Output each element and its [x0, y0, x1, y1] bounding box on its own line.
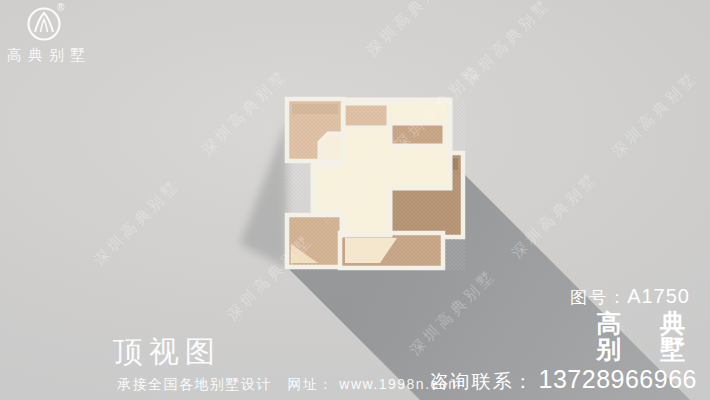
render-canvas: 深圳高典别墅 深圳高典别墅 深圳高典别墅 深圳高典别墅 深圳高典别墅 深圳高典别…: [0, 0, 710, 400]
footer-services-text: 承接全国各地别墅设计: [117, 376, 272, 392]
drawing-number-label: 图号：: [570, 286, 627, 309]
footer-services-line: 承接全国各地别墅设计 网址： www.1998n.com: [117, 376, 462, 394]
footer-website-label: 网址：: [287, 376, 334, 392]
contact-row: 咨询联系： 13728966966: [430, 365, 697, 395]
drawing-number: 图号： A1750: [570, 285, 690, 309]
brand-name-block: 高 典 别 墅: [596, 311, 687, 363]
brand-logo-text: 高典别墅: [7, 46, 91, 65]
drawing-number-value: A1750: [627, 285, 690, 308]
registered-trademark-symbol: ®: [57, 2, 64, 13]
view-title: 顶视图: [113, 332, 221, 373]
building-left-shadow: [240, 120, 287, 268]
brand-name-line1: 高 典: [596, 311, 687, 337]
brand-name-line2: 别 墅: [596, 337, 687, 363]
contact-label: 咨询联系：: [430, 369, 535, 395]
contact-phone-number: 13728966966: [539, 365, 697, 394]
